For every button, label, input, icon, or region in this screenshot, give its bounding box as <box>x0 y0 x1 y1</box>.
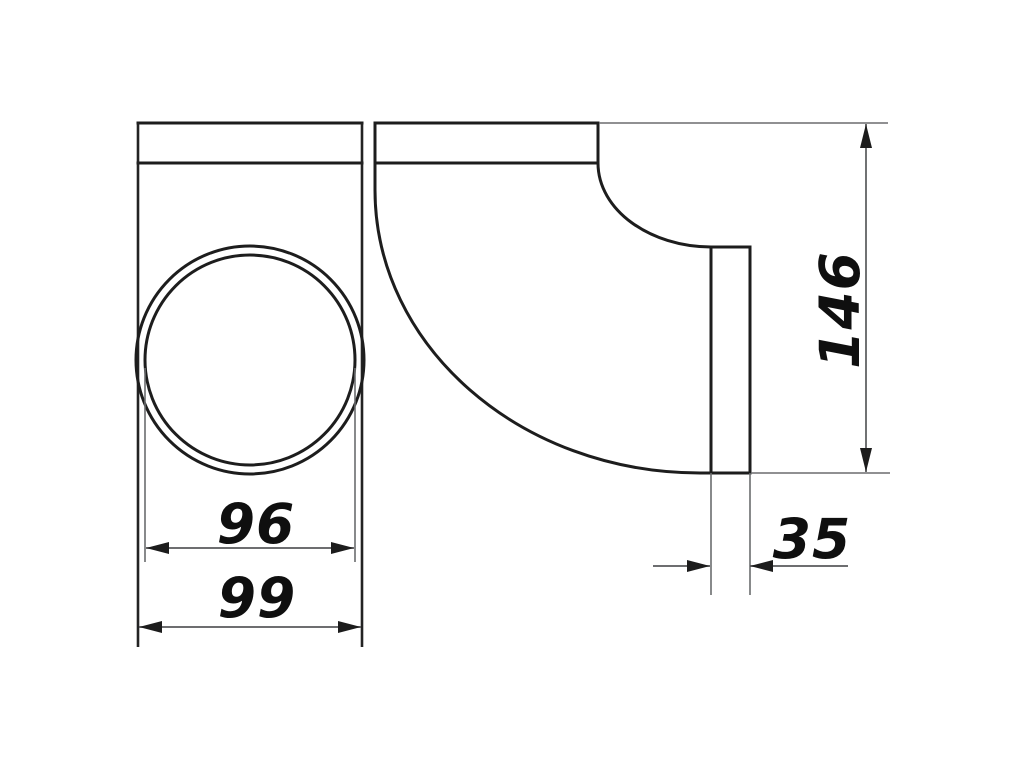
arrow-right-icon <box>331 542 354 554</box>
arrow-left-icon <box>750 560 773 572</box>
arrow-up-icon <box>860 124 872 148</box>
dim-146-label: 146 <box>808 251 872 369</box>
dim-35-label: 35 <box>773 507 852 571</box>
arrow-right-icon <box>687 560 710 572</box>
spigot-inner-circle <box>145 255 355 465</box>
dim-99-label: 99 <box>218 566 297 630</box>
drawing-canvas: 96 99 146 35 <box>0 0 1024 768</box>
technical-drawing: 96 99 146 35 <box>0 0 1024 768</box>
dimension-35: 35 <box>653 473 851 595</box>
arrow-left-icon <box>146 542 169 554</box>
arrow-right-icon <box>338 621 361 633</box>
side-view <box>374 122 752 474</box>
arrow-down-icon <box>860 448 872 472</box>
arrow-left-icon <box>139 621 162 633</box>
dimension-146: 146 <box>599 123 890 473</box>
elbow-outer-curve <box>375 190 752 473</box>
dimension-99: 99 <box>139 566 361 633</box>
spigot-outer-circle <box>136 246 364 474</box>
dim-96-label: 96 <box>217 492 296 556</box>
elbow-inner-curve <box>598 163 711 247</box>
